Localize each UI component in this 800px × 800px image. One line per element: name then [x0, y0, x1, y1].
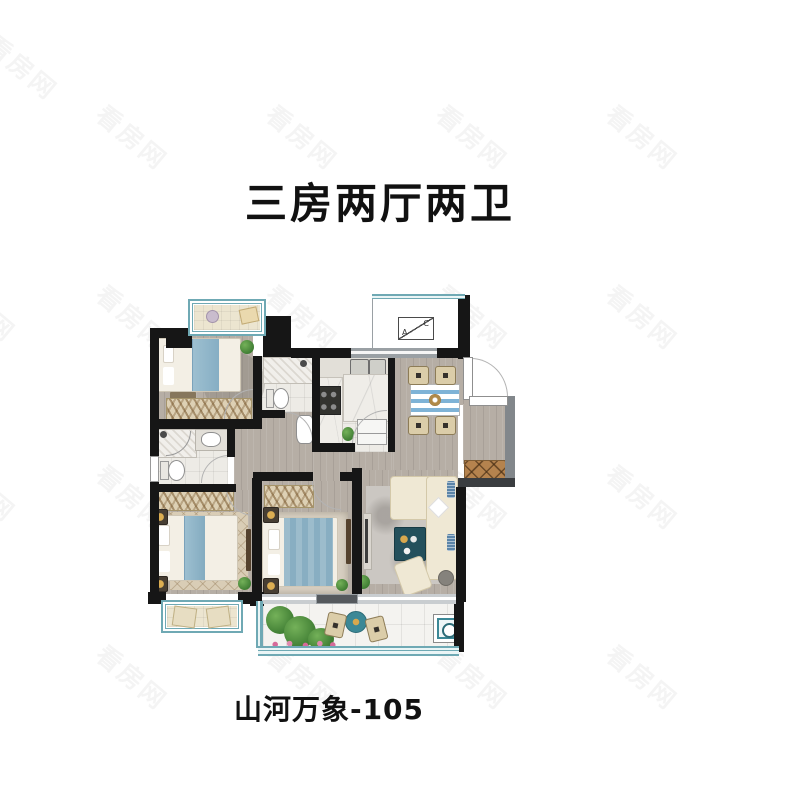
wall: [263, 316, 291, 357]
dining-chair: [435, 416, 456, 435]
watermark-text: 看房网: [599, 96, 687, 178]
wall: [388, 356, 395, 452]
toilet-bowl: [168, 460, 185, 481]
wall: [505, 396, 515, 486]
watermark-text: 看房网: [0, 268, 24, 350]
living-room-tv: [365, 519, 368, 563]
entry-door-arc: [471, 358, 508, 397]
ac-platform: A C: [372, 298, 467, 352]
watermark-text: 看房网: [599, 456, 687, 538]
bedroom1-bay-window: [188, 299, 266, 336]
entry-door-leaf: [463, 357, 473, 400]
ac-unit-box: A C: [398, 317, 434, 340]
bedroom2-tv: [246, 529, 251, 571]
balcony-railing: [258, 646, 459, 656]
wall: [312, 443, 355, 452]
plant-icon: [238, 577, 251, 590]
dining-chair: [435, 366, 456, 385]
corridor-floor: [234, 428, 253, 490]
page-title: 三房两厅两卫: [0, 170, 760, 231]
plan-caption: 山河万象-105: [140, 688, 518, 728]
wall: [312, 352, 320, 412]
wall: [227, 428, 235, 457]
master-tv: [346, 519, 351, 564]
shower-head-icon: [300, 360, 307, 367]
wall: [252, 478, 262, 594]
dining-chair: [408, 416, 429, 435]
lounge-cushion: [206, 605, 232, 628]
bathroom2-window: [150, 456, 159, 482]
entry-floor: [463, 404, 506, 464]
plant-icon: [240, 340, 254, 354]
nightstand-lamp: [263, 507, 279, 523]
dining-chair: [408, 366, 429, 385]
master-bed: [262, 517, 338, 587]
side-stool: [438, 570, 454, 586]
master-wardrobe: [264, 485, 314, 508]
wall: [458, 295, 470, 359]
watermark-text: 看房网: [599, 276, 687, 358]
wall: [454, 600, 464, 652]
cushion-pillow: [206, 310, 219, 323]
wall: [253, 356, 262, 429]
wall: [253, 472, 313, 481]
entry-threshold: [469, 396, 508, 406]
watermark-text: 看房网: [599, 636, 687, 718]
plant-icon: [336, 579, 348, 591]
shoe-cabinet: [464, 460, 509, 480]
wall: [262, 410, 285, 418]
nightstand-lamp: [263, 578, 279, 594]
ac-label-a: A: [402, 329, 407, 337]
bathroom2-sink: [201, 432, 221, 447]
watermark-text: 看房网: [0, 26, 66, 108]
ac-platform-rail: [372, 294, 465, 299]
bedroom2-bay-window: [161, 600, 243, 633]
floorplan-page: 看房网 看房网 看房网 看房网 看房网 看房网 看房网 看房网 看房网 看房网 …: [0, 0, 800, 800]
lounge-cushion: [172, 605, 198, 628]
wall: [458, 478, 515, 487]
wall: [157, 419, 254, 429]
balcony-side-railing: [256, 601, 263, 648]
watermark-text: 看房网: [259, 96, 347, 178]
watermark-text: 看房网: [0, 448, 24, 530]
watermark-text: 看房网: [89, 96, 177, 178]
wall: [150, 484, 236, 492]
watermark-text: 看房网: [429, 96, 517, 178]
kitchen-window: [351, 348, 437, 358]
wall: [456, 487, 466, 602]
balcony-sliding-door: [316, 594, 358, 604]
wall: [352, 468, 362, 596]
sofa-pillow: [447, 481, 455, 498]
toilet-bowl: [273, 388, 289, 409]
dining-table: [410, 384, 460, 416]
ac-label-c: C: [423, 320, 429, 328]
wall: [291, 348, 353, 358]
balcony-table: [345, 611, 367, 633]
sofa-pillow: [447, 534, 455, 551]
balcony-window-band: [262, 594, 456, 604]
